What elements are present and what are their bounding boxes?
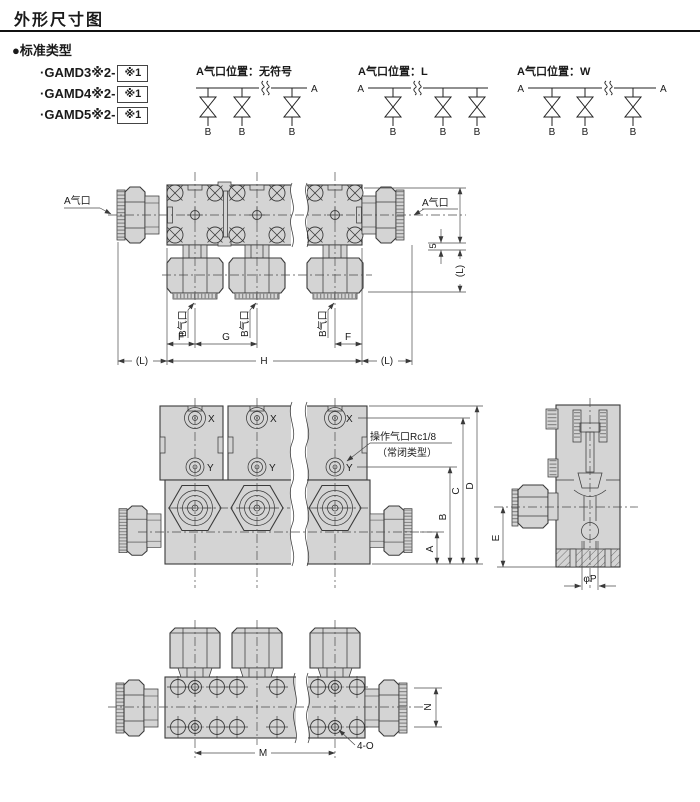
b-port-callout: B气口 [176,303,194,338]
dim-c: C [451,487,462,494]
front-view-drawing: X X X Y Y Y 操作气口Rc1/8 （常闭类型） A B C D [119,398,483,588]
top-view-drawing: F G F H (L) (L) 5 (L) A气口 A气口 [64,172,466,367]
schematic-title: A气口位置：W [517,64,591,78]
b-port-label: B气口 [238,310,251,337]
dim-e: E [491,534,502,541]
dim-l-vert: (L) [455,265,466,277]
dim-l-left: (L) [136,356,148,367]
dim-f-right: F [345,332,351,343]
a-port-label-left: A气口 [64,194,91,207]
schematic-title: A气口位置：L [358,64,428,78]
schematic-title: A气口位置：无符号 [196,64,292,78]
dim-m: M [259,748,267,759]
dim-o-holes: 4-O [357,741,374,752]
dim-p: φP [583,574,596,585]
port-b-label: B [549,127,556,138]
dim-d: D [465,482,476,489]
b-port-callout: B气口 [316,303,334,338]
x-port-label: X [270,414,277,425]
catalog-page: 外形尺寸图 ●标准类型 ·GAMD3※2-※1 ·GAMD4※2-※1 ·GAM… [0,0,700,802]
bottom-view-drawing: M N 4-O [108,620,442,759]
dim-b: B [438,513,449,520]
y-port-label: Y [269,463,276,474]
schematic-none: A气口位置：无符号 A B B B [196,64,318,138]
x-port-label: X [346,414,353,425]
port-b-label: B [474,127,481,138]
b-port-callout: B气口 [238,303,256,338]
y-port-label: Y [346,463,353,474]
port-a-label: A [517,84,524,95]
dim-g: G [222,332,230,343]
port-b-label: B [289,127,296,138]
a-port-label-right: A气口 [422,196,449,209]
port-b-label: B [239,127,246,138]
dim-h: H [260,356,267,367]
x-port-label: X [208,414,215,425]
port-b-label: B [630,127,637,138]
dim-l-right: (L) [381,356,393,367]
port-a-label: A [660,84,667,95]
dimension-drawings: A气口位置：无符号 A B B B A气口位置：L A B B B A气口位置：… [0,0,700,802]
pilot-port-annotation-2: （常闭类型） [377,446,437,459]
y-port-label: Y [207,463,214,474]
b-port-label: B气口 [316,310,329,337]
pilot-port-annotation: 操作气口Rc1/8 [370,430,437,443]
dim-a: A [425,545,436,552]
port-a-label: A [311,84,318,95]
schematic-w: A气口位置：W A A B B B [517,64,667,138]
side-view-drawing: E φP [491,398,638,590]
port-b-label: B [390,127,397,138]
port-b-label: B [582,127,589,138]
dim-5: 5 [428,243,439,248]
b-port-label: B气口 [176,310,189,337]
port-b-label: B [440,127,447,138]
port-b-label: B [205,127,212,138]
schematic-l: A气口位置：L A B B B [357,64,488,138]
dim-n: N [423,703,434,710]
port-a-label: A [357,84,364,95]
